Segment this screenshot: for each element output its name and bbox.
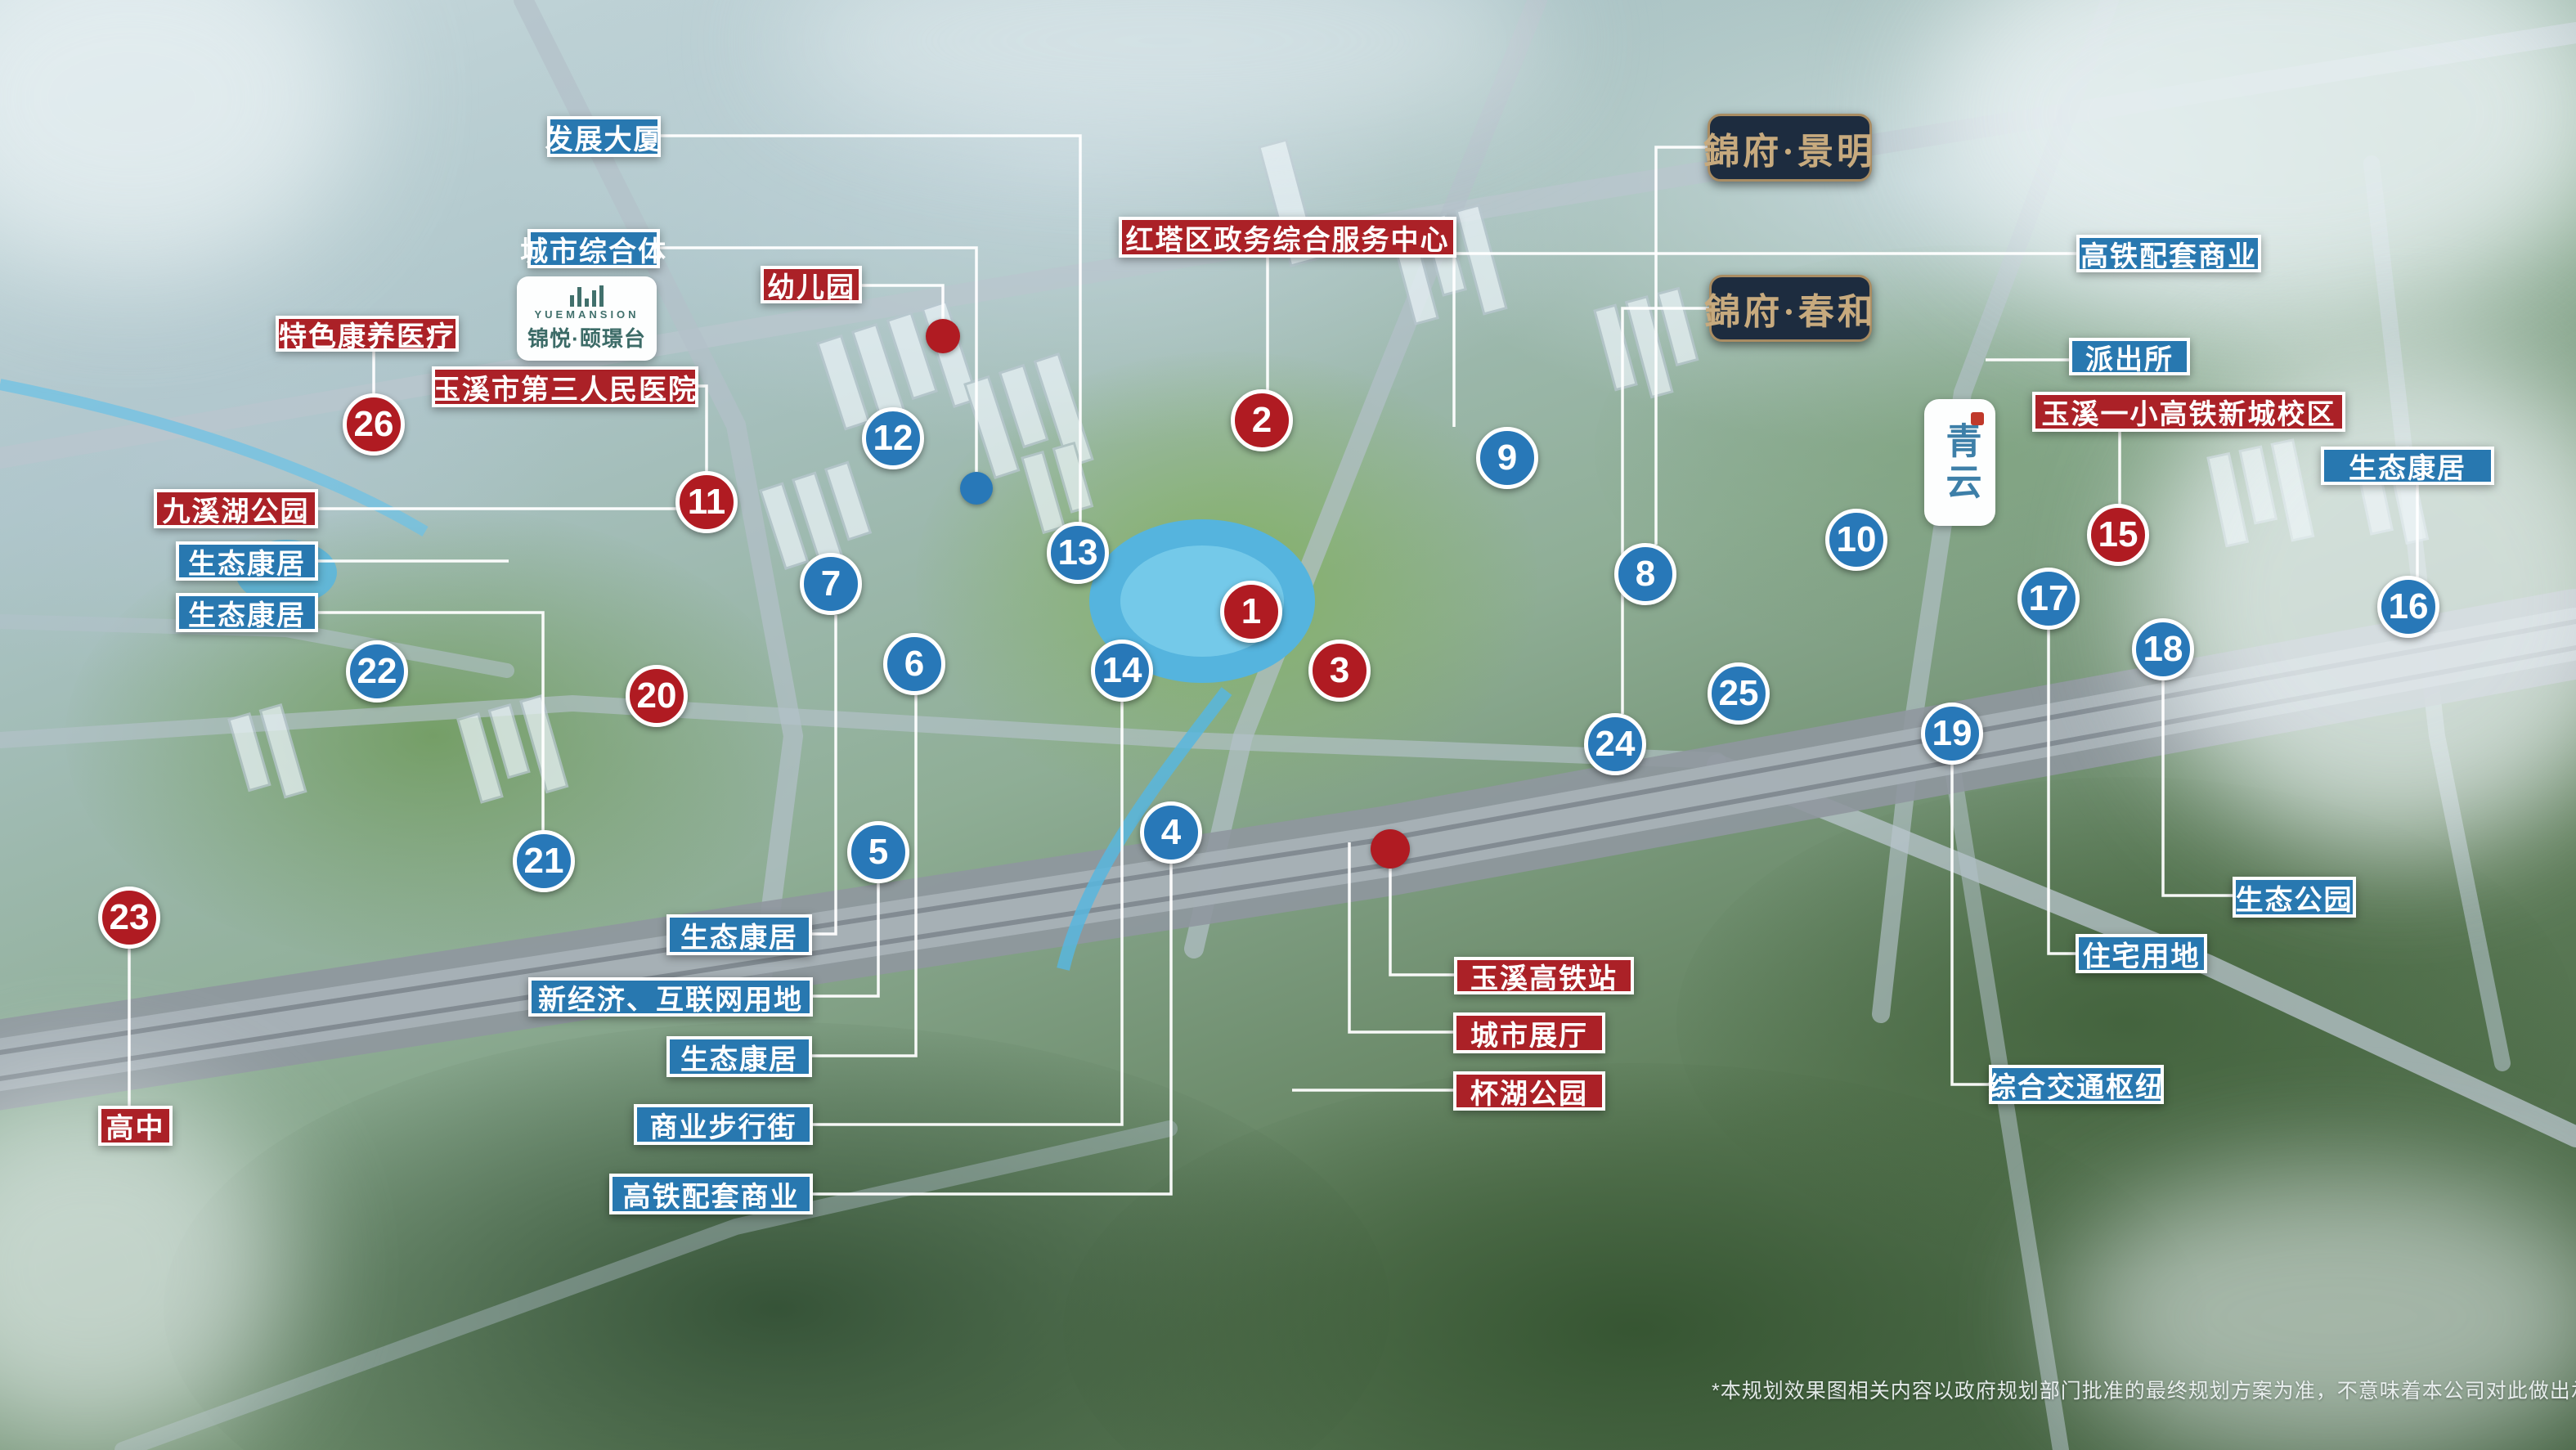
callout-beihu-park: 杯湖公园 [1453, 1071, 1605, 1111]
callout-jiuxi-lake-park: 九溪湖公园 [154, 489, 318, 528]
masterplan-aerial-map: 1234567891011121314151617181920212223242… [0, 0, 2576, 1450]
callout-eco-living-bottom-1: 生态康居 [666, 914, 812, 955]
yuemansion-logo-en: YUEMANSION [534, 308, 639, 321]
callout-yuxi-no1-primary-school: 玉溪一小高铁新城校区 [2032, 392, 2345, 432]
callout-residential-land: 住宅用地 [2076, 934, 2207, 973]
callout-eco-living-left-2: 生态康居 [176, 593, 318, 632]
callout-jinfu-jingming: 錦府·景明 [1708, 114, 1872, 182]
disclaimer-text: *本规划效果图相关内容以政府规划部门批准的最终规划方案为准，不意味着本公司对此做… [1712, 1375, 2576, 1404]
callout-yuxi-hsr-station: 玉溪高铁站 [1454, 957, 1634, 994]
yuemansion-towers-icon [570, 285, 604, 307]
callout-eco-living-right: 生态康居 [2321, 447, 2494, 485]
callout-police-station: 派出所 [2069, 338, 2190, 375]
callout-hsr-commercial-top: 高铁配套商业 [2076, 235, 2261, 272]
callout-labels-layer: 发展大厦城市综合体高铁配套商业派出所生态康居生态康居生态康居生态康居新经济、互联… [0, 0, 2576, 1450]
callout-yuxi-third-peoples-hospital: 玉溪市第三人民医院 [432, 366, 698, 407]
callout-kindergarten: 幼儿园 [761, 266, 862, 303]
callout-commercial-walking-street: 商业步行街 [634, 1104, 813, 1145]
callout-transport-hub: 综合交通枢纽 [1989, 1065, 2164, 1104]
callout-city-exhibition-hall: 城市展厅 [1453, 1012, 1605, 1053]
callout-urban-complex: 城市综合体 [527, 229, 660, 268]
callout-eco-living-bottom-2: 生态康居 [666, 1036, 812, 1077]
callout-high-school: 高中 [98, 1106, 173, 1146]
callout-eco-park: 生态公园 [2233, 877, 2356, 918]
callout-new-economy-internet-land: 新经济、互联网用地 [528, 977, 813, 1017]
callout-hongta-gov-service-center: 红塔区政务综合服务中心 [1119, 217, 1456, 258]
yuemansion-logo: YUEMANSION 锦悦·颐璟台 [517, 276, 657, 361]
qingyun-logo: 青云 [1924, 399, 1995, 526]
qingyun-logo-cn: 青云 [1934, 422, 1986, 504]
callout-hsr-commercial-bottom: 高铁配套商业 [609, 1174, 813, 1214]
callout-eco-living-left-1: 生态康居 [176, 541, 318, 581]
yuemansion-logo-cn: 锦悦·颐璟台 [527, 322, 646, 352]
callout-special-health-care: 特色康养医疗 [276, 316, 459, 352]
qingyun-seal-icon [1971, 412, 1984, 425]
callout-development-tower: 发展大厦 [547, 116, 661, 157]
callout-jinfu-chunhe: 錦府·春和 [1709, 275, 1872, 342]
